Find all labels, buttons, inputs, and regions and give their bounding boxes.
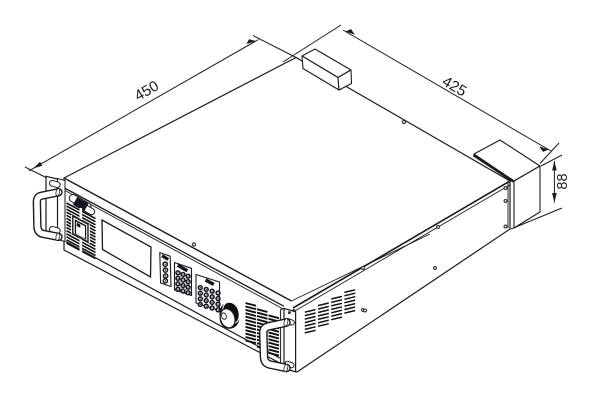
svg-text:88: 88 (555, 173, 571, 189)
